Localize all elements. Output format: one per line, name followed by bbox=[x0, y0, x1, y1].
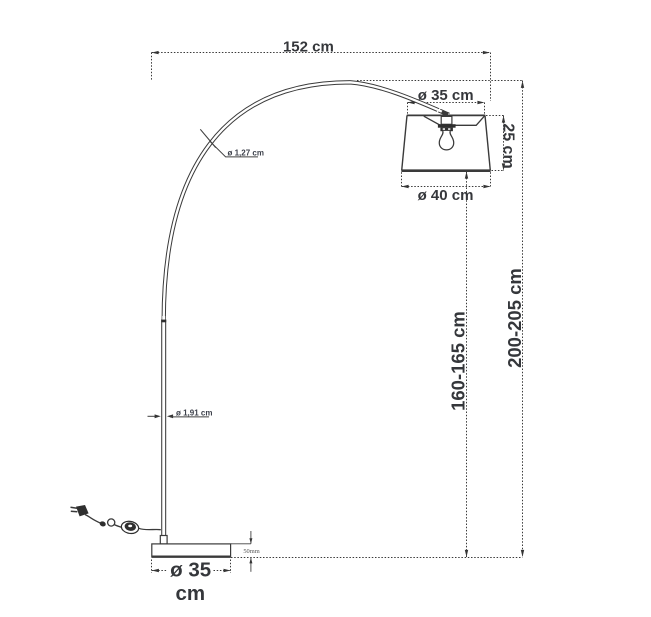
svg-text:160-165 cm: 160-165 cm bbox=[447, 311, 468, 411]
svg-text:ø 35: ø 35 bbox=[170, 558, 211, 581]
svg-text:200-205 cm: 200-205 cm bbox=[504, 268, 525, 368]
svg-text:ø 35 cm: ø 35 cm bbox=[418, 87, 474, 104]
svg-text:25 cm: 25 cm bbox=[500, 123, 517, 168]
svg-text:cm: cm bbox=[175, 582, 205, 605]
svg-text:ø 40 cm: ø 40 cm bbox=[418, 187, 474, 204]
svg-text:ø 1,91 cm: ø 1,91 cm bbox=[176, 408, 212, 417]
svg-text:50mm: 50mm bbox=[243, 548, 259, 555]
svg-text:152 cm: 152 cm bbox=[283, 38, 334, 55]
svg-text:ø 1,27 cm: ø 1,27 cm bbox=[228, 148, 264, 157]
